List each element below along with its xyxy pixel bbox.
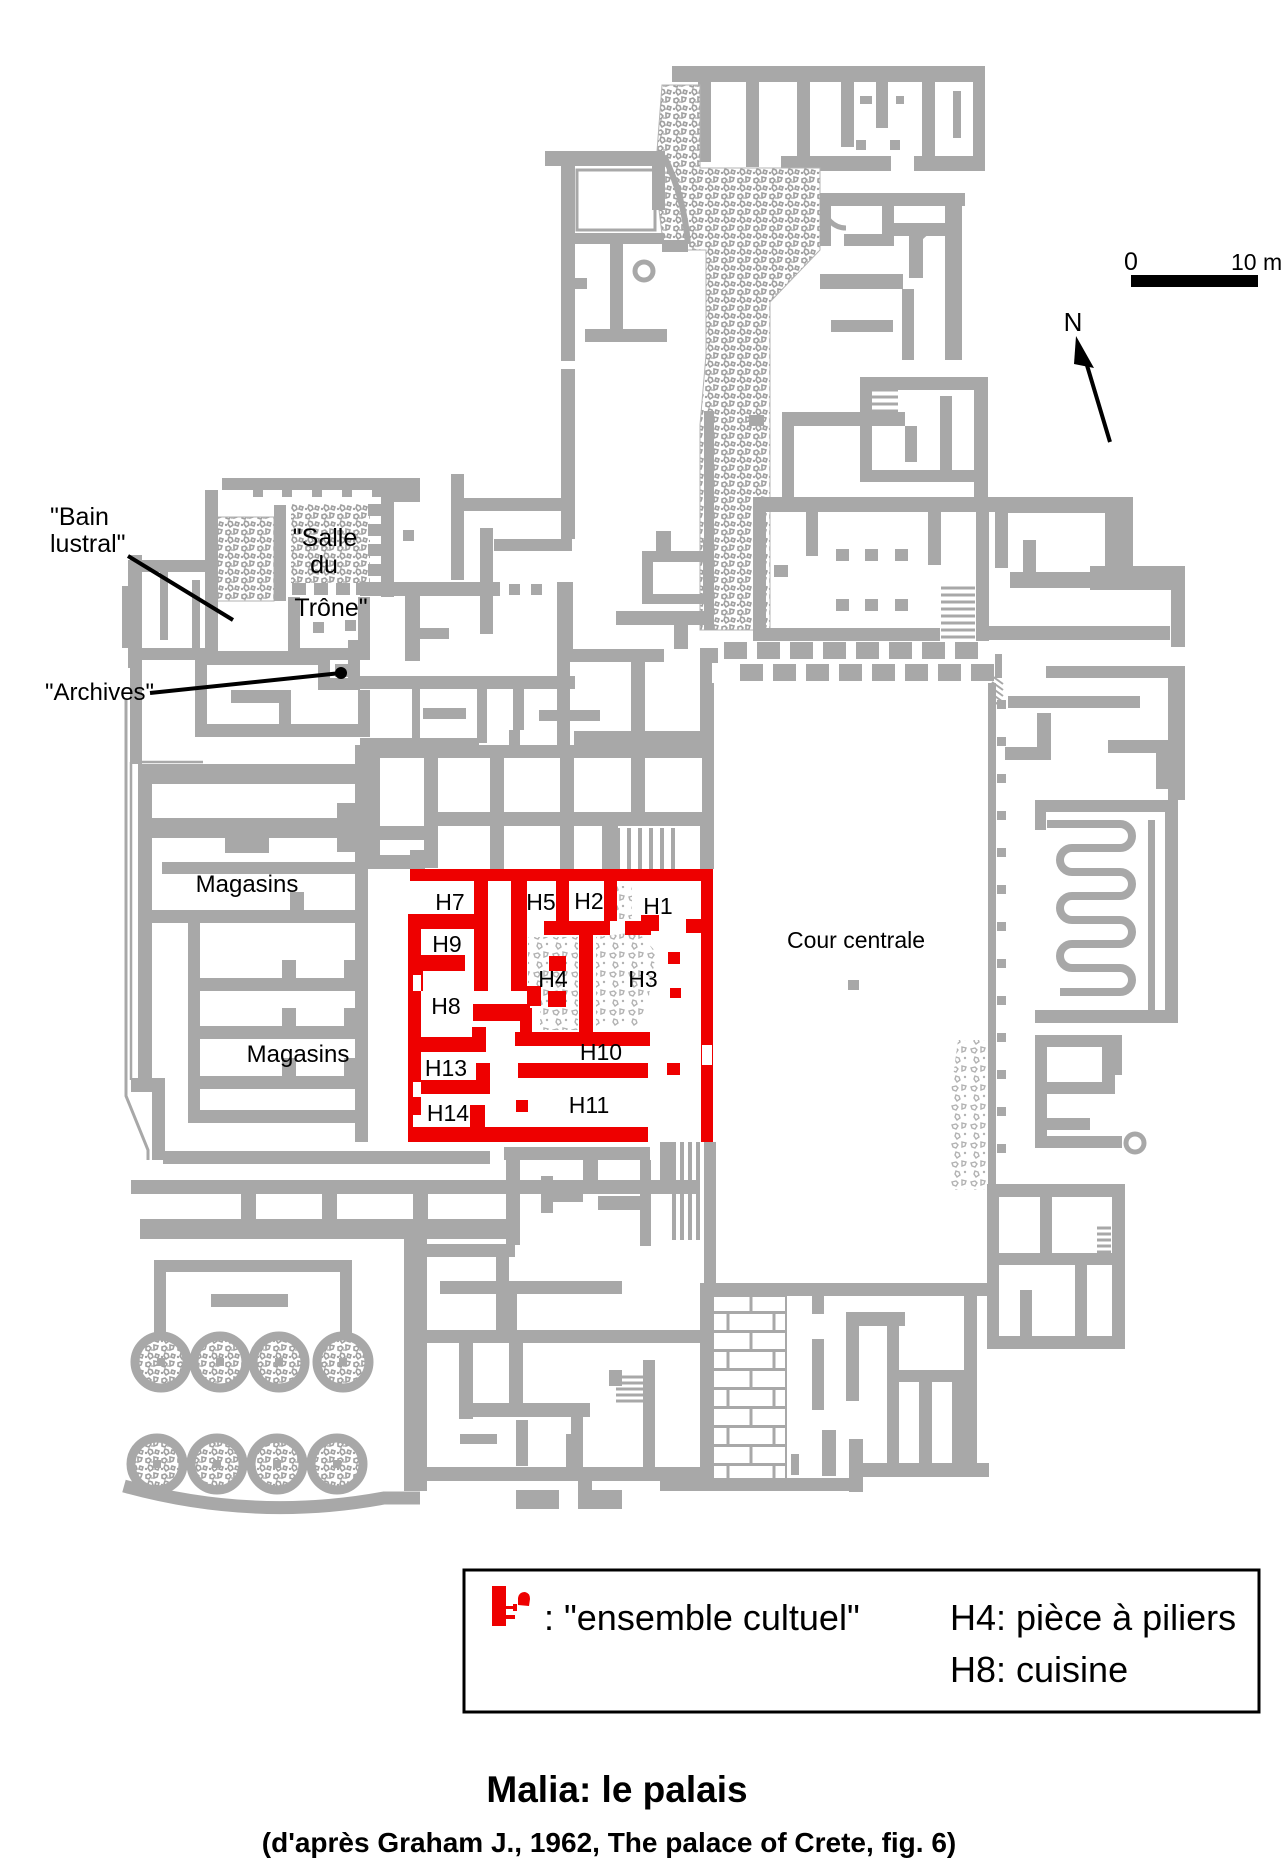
- svg-text:H8: cuisine: H8: cuisine: [950, 1649, 1128, 1690]
- svg-text:Cour centrale: Cour centrale: [787, 927, 925, 953]
- svg-text:H4: pièce à piliers: H4: pièce à piliers: [950, 1597, 1236, 1638]
- svg-text:: "ensemble cultuel": : "ensemble cultuel": [544, 1597, 860, 1638]
- svg-text:H10: H10: [580, 1039, 622, 1065]
- svg-text:0: 0: [1124, 248, 1138, 276]
- svg-text:H11: H11: [569, 1092, 610, 1118]
- svg-text:H1: H1: [643, 893, 672, 919]
- svg-text:H7: H7: [435, 889, 464, 915]
- svg-text:lustral": lustral": [50, 530, 126, 558]
- svg-text:H2: H2: [574, 888, 603, 914]
- svg-text:H5: H5: [526, 889, 555, 915]
- svg-text:"Archives": "Archives": [45, 679, 154, 706]
- svg-text:Malia: le palais: Malia: le palais: [486, 1769, 747, 1810]
- svg-text:H8: H8: [431, 993, 460, 1019]
- svg-text:H13: H13: [425, 1055, 467, 1081]
- svg-text:Trône": Trône": [294, 594, 367, 622]
- svg-text:du: du: [310, 551, 338, 579]
- svg-text:10 m: 10 m: [1231, 249, 1282, 275]
- svg-text:Magasins: Magasins: [196, 871, 299, 898]
- svg-text:Magasins: Magasins: [247, 1041, 350, 1068]
- svg-text:H9: H9: [432, 931, 461, 957]
- svg-text:(d'après Graham J., 1962, The: (d'après Graham J., 1962, The palace of …: [262, 1827, 956, 1858]
- svg-text:H3: H3: [628, 966, 657, 992]
- svg-text:"Salle: "Salle: [293, 524, 357, 552]
- svg-text:N: N: [1064, 307, 1083, 337]
- svg-text:H4: H4: [538, 966, 568, 992]
- svg-text:H14: H14: [427, 1100, 469, 1126]
- svg-text:"Bain: "Bain: [50, 503, 109, 531]
